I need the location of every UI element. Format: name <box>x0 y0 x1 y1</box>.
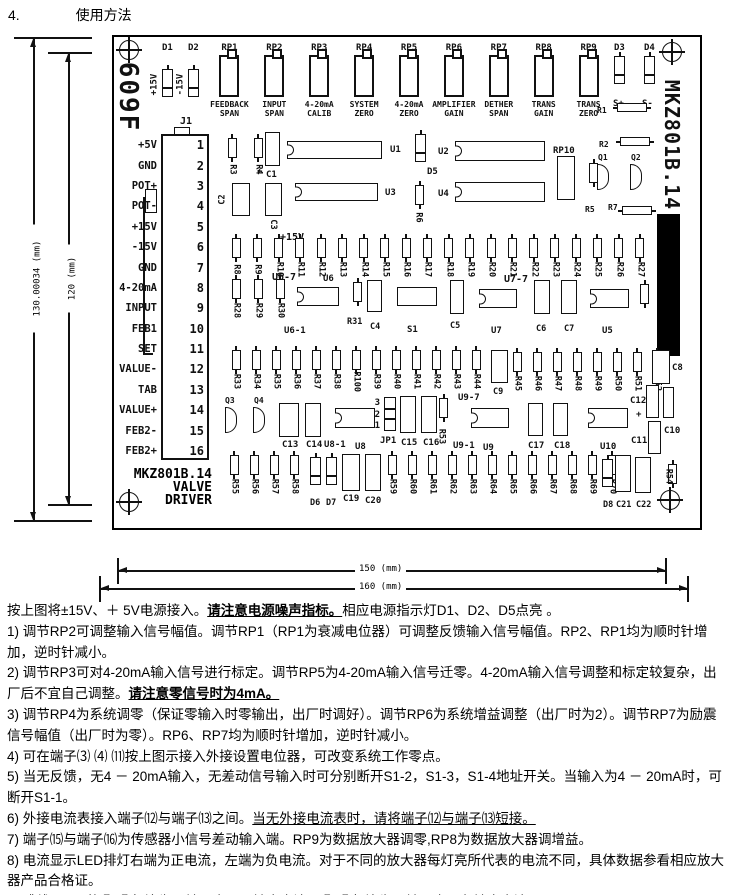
resistor: R19 <box>460 238 480 275</box>
resistor: R15 <box>375 238 395 275</box>
ic-u10 <box>588 408 628 428</box>
resistor-r5-icon <box>589 163 598 183</box>
resistor-body-icon <box>292 350 301 370</box>
resistor-body-icon <box>588 455 597 475</box>
resistor: R39 <box>366 350 386 387</box>
label-c18: C18 <box>554 441 570 451</box>
resistor-body-icon <box>412 350 421 370</box>
j1-pin-row: 4-20mA 8 <box>109 278 208 298</box>
resistor: R18 <box>439 238 459 275</box>
section-number: 4. <box>8 7 20 23</box>
dim-cap <box>14 520 92 522</box>
resistor: R65 <box>502 455 522 492</box>
resistor: R48 <box>567 352 587 389</box>
resistor: R68 <box>562 455 582 492</box>
resistor-body-icon <box>380 238 389 258</box>
resistor: R50 <box>607 352 627 389</box>
label-r6: R6 <box>414 208 425 228</box>
resistor-body-icon <box>550 238 559 258</box>
label-u8: U8 <box>355 442 366 452</box>
resistor-label: R55 <box>229 477 240 497</box>
resistor: R62 <box>442 455 462 492</box>
resistor-label: R26 <box>613 260 624 280</box>
resistor: R36 <box>286 350 306 387</box>
label-c6: C6 <box>536 324 546 334</box>
trimpot-caption-line2: ZERO <box>579 109 598 118</box>
resistor-body-icon <box>428 455 437 475</box>
capacitor-c16-icon <box>421 396 437 433</box>
resistor-body-icon <box>465 238 474 258</box>
label-q4: Q4 <box>254 396 264 405</box>
trimpot-caption-line2: GAIN <box>534 109 553 118</box>
resistor-row-4a: R55 R56 R57 R58 <box>224 455 304 492</box>
instruction-item-4: 4) 可在端子⑶ ⑷ ⑾按上图示接入外接设置电位器，可改变系统工作零点。 <box>7 747 724 768</box>
jp1-pin-number: 3 <box>372 398 380 410</box>
intro-post: 相应电源指示灯D1、D2、D5点亮 。 <box>342 603 560 618</box>
dip-switch-s1-icon <box>397 287 437 306</box>
capacitor-c7-icon <box>561 280 577 314</box>
intro-emphasis: 请注意电源噪声指标。 <box>207 603 342 618</box>
mounting-hole-icon <box>660 490 680 510</box>
dim-arrow <box>65 496 71 504</box>
jp1-pin-number: 1 <box>372 421 380 433</box>
resistor-body-icon <box>423 238 432 258</box>
trimpot-caption-line1: SYSTEM <box>350 100 379 109</box>
instruction-item-5: 5) 当无反馈，无4 － 20mA输入，无差动信号输入时可分别断开S1-2，S1… <box>7 767 724 809</box>
resistor-body-icon <box>232 279 241 299</box>
transistor-q4-icon <box>253 407 265 433</box>
label-j1: J1 <box>180 116 192 127</box>
resistor: R67 <box>542 455 562 492</box>
resistor-label: R17 <box>422 260 433 280</box>
resistor: R34 <box>246 350 266 387</box>
j1-pin-row: SET 11 <box>109 339 208 359</box>
resistor-body-icon <box>276 279 285 299</box>
label-c19: C19 <box>343 494 359 504</box>
resistor-body-icon <box>472 350 481 370</box>
resistor-r6-icon <box>415 185 424 205</box>
capacitor-c13-icon <box>279 403 299 437</box>
resistor: R37 <box>306 350 326 387</box>
resistor-body-icon <box>272 350 281 370</box>
resistor-body-icon <box>250 455 259 475</box>
resistor-label: R35 <box>271 372 282 392</box>
resistor-label: R19 <box>464 260 475 280</box>
label-r54: R54 <box>664 467 675 487</box>
resistor-body-icon <box>254 279 263 299</box>
resistor-row-4b: R59 R60 R61 R62 R63 R64 R65 R66 <box>382 455 594 492</box>
j1-pin-number: 6 <box>197 240 208 254</box>
ic-u8 <box>335 408 375 428</box>
trimpot-body-icon <box>534 55 554 97</box>
j1-pin-label: INPUT <box>109 302 157 314</box>
resistor: R20 <box>481 238 501 275</box>
resistor: R3 <box>222 138 242 175</box>
resistor-body-icon <box>338 238 347 258</box>
j1-pin-label: POT- <box>109 200 157 212</box>
resistor: R12 <box>311 238 331 275</box>
j1-pin-row: +5V 1 <box>109 135 208 155</box>
resistor-body-icon <box>317 238 326 258</box>
resistor: R23 <box>545 238 565 275</box>
capacitor-c9-icon <box>491 350 508 383</box>
label-minus15v: -15V <box>175 65 186 105</box>
trimpot: RP7 DETHER SPAN <box>476 43 521 118</box>
trimpot-body-icon <box>579 55 599 97</box>
led-bar-display <box>657 214 680 356</box>
capacitor-c14-icon <box>305 403 321 437</box>
resistor: R24 <box>566 238 586 275</box>
trimpot-caption-line1: AMPLIFIER <box>432 100 475 109</box>
diode-d1-icon <box>162 69 173 97</box>
ic-u6-1 <box>297 287 339 306</box>
resistor-label: R60 <box>407 477 418 497</box>
resistor-label: R66 <box>527 477 538 497</box>
label-jp1: JP1 <box>380 436 396 446</box>
resistor-label: R100 <box>351 372 362 392</box>
resistor: R9 <box>247 238 267 275</box>
polarity-plus-mark: + <box>636 410 641 420</box>
trimpot-caption-line2: SPAN <box>265 109 284 118</box>
label-c13: C13 <box>282 440 298 450</box>
resistor-label: R63 <box>467 477 478 497</box>
label-c17: C17 <box>528 441 544 451</box>
j1-pin-row: GND 2 <box>109 155 208 175</box>
section-title: 使用方法 <box>76 7 132 23</box>
resistor-body-icon <box>635 238 644 258</box>
j1-pin-row: FEB1 10 <box>109 319 208 339</box>
j1-pin-number: 8 <box>197 281 208 295</box>
resistor-body-icon <box>392 350 401 370</box>
resistor-body-icon <box>432 350 441 370</box>
resistor-body-icon <box>573 352 582 372</box>
dim-cap <box>14 37 92 39</box>
label-d5: D5 <box>427 167 438 177</box>
dim-arrow <box>101 585 109 591</box>
label-c10: C10 <box>664 426 680 436</box>
resistor: R17 <box>417 238 437 275</box>
label-c20: C20 <box>365 496 381 506</box>
j1-pin-label: +5V <box>109 139 157 151</box>
trimpot-caption-line2: SPAN <box>220 109 239 118</box>
j1-pin-label: VALUE+ <box>109 404 157 416</box>
resistor-row-3b: R45 R46 R47 R48 R49 R50 R51 R52 <box>507 352 657 389</box>
resistor-body-icon <box>295 238 304 258</box>
label-u7: U7 <box>491 326 502 336</box>
dim-cap <box>48 504 92 506</box>
instruction-item-3: 3) 调节RP4为系统调零（保证零输入时零输出，出厂时调好）。调节RP6为系统增… <box>7 705 724 747</box>
label-u9-1: U9-1 <box>453 441 475 451</box>
resistor: R46 <box>527 352 547 389</box>
resistor-body-icon <box>508 455 517 475</box>
label-s1: S1 <box>407 325 418 335</box>
resistor-body-icon <box>372 350 381 370</box>
resistor-label: R27 <box>634 260 645 280</box>
resistor-body-icon <box>593 238 602 258</box>
resistor-body-icon <box>312 350 321 370</box>
ic-u4 <box>455 182 545 202</box>
resistor-body-icon <box>402 238 411 258</box>
trimpot-rp10-icon <box>557 156 575 200</box>
trimpot: RP1 FEEDBACK SPAN <box>207 43 252 118</box>
jp1-pin-number: 2 <box>372 410 380 422</box>
resistor-row-2: R28 R29 R30 <box>226 279 290 316</box>
resistor-label: R22 <box>528 260 539 280</box>
j1-pin-number: 4 <box>197 199 208 213</box>
item6-emphasis: 当无外接电流表时，请将端子⑿与端子⒀短接。 <box>252 811 536 826</box>
resistor: R66 <box>522 455 542 492</box>
trimpot-caption-line1: INPUT <box>262 100 286 109</box>
resistor-body-icon <box>593 352 602 372</box>
resistor-r53-icon <box>439 398 448 418</box>
label-c1: C1 <box>266 170 277 180</box>
label-u6-1: U6-1 <box>284 326 306 336</box>
section-header: 4. 使用方法 <box>8 5 132 25</box>
label-d2: D2 <box>188 43 199 53</box>
trimpot-body-icon <box>264 55 284 97</box>
board-code-right: MKZ801B.14 <box>659 55 685 235</box>
capacitor-c21-icon <box>615 455 631 492</box>
resistor-label: R65 <box>507 477 518 497</box>
resistor-label: R16 <box>401 260 412 280</box>
trimpot-caption-line2: SPAN <box>489 109 508 118</box>
resistor-label: R14 <box>358 260 369 280</box>
label-d7: D7 <box>326 498 336 508</box>
item6-pre: 6) 外接电流表接入端子⑿与端子⒀之间。 <box>7 811 252 826</box>
instruction-item-8: 8) 电流显示LED排灯右端为正电流，左端为负电流。对于不同的放大器每灯亮所代表… <box>7 851 724 893</box>
label-u2: U2 <box>438 147 449 157</box>
trimpot: RP8 TRANS GAIN <box>521 43 566 118</box>
resistor: R8 <box>226 238 246 275</box>
capacitor-c22-icon <box>635 457 651 493</box>
resistor-label: R56 <box>249 477 260 497</box>
instruction-item-1: 1) 调节RP2可调整输入信号幅值。调节RP1（RP1为衰减电位器）可调整反馈输… <box>7 622 724 664</box>
capacitor-c5-icon <box>450 280 464 314</box>
label-rp10: RP10 <box>553 146 575 156</box>
resistor-label: R3 <box>227 160 238 180</box>
capacitor-c1-icon <box>265 132 280 166</box>
ic-u1 <box>287 141 382 159</box>
j1-pin-number: 7 <box>197 261 208 275</box>
resistor: R16 <box>396 238 416 275</box>
label-u4: U4 <box>438 189 449 199</box>
resistor-body-icon <box>352 350 361 370</box>
resistor-body-icon <box>228 138 237 158</box>
resistor-body-icon <box>468 455 477 475</box>
resistor-label: R46 <box>532 374 543 394</box>
resistor-body-icon <box>572 238 581 258</box>
resistor-label: R24 <box>571 260 582 280</box>
label-u5: U5 <box>602 326 613 336</box>
resistor-label: R38 <box>331 372 342 392</box>
trimpot: RP5 4-20mA ZERO <box>387 43 432 118</box>
resistor-r1-icon <box>617 103 647 112</box>
label-c21: C21 <box>616 500 631 510</box>
resistor: R13 <box>332 238 352 275</box>
capacitor-c12-icon <box>646 385 659 418</box>
resistor-body-icon <box>548 455 557 475</box>
resistor-label: R49 <box>592 374 603 394</box>
resistor-body-icon <box>253 238 262 258</box>
trimpot-body-icon <box>489 55 509 97</box>
ic-u2 <box>455 141 545 161</box>
resistor-label: R15 <box>379 260 390 280</box>
resistor: R44 <box>466 350 486 387</box>
resistor: R25 <box>587 238 607 275</box>
j1-pin-number: 2 <box>197 159 208 173</box>
label-r2: R2 <box>599 140 609 149</box>
resistor: R28 <box>226 279 246 316</box>
resistor: R57 <box>264 455 284 492</box>
resistor-label: R69 <box>587 477 598 497</box>
resistor-label: R68 <box>567 477 578 497</box>
resistor-label: R41 <box>411 372 422 392</box>
dim-arrow <box>679 585 687 591</box>
resistor: R29 <box>248 279 268 316</box>
diode-d8-icon <box>602 459 613 487</box>
label-c15: C15 <box>401 438 417 448</box>
resistor: R11 <box>290 238 310 275</box>
resistor-label: R48 <box>572 374 583 394</box>
resistor-body-icon <box>528 455 537 475</box>
resistor: R61 <box>422 455 442 492</box>
j1-pin-number: 10 <box>190 322 208 336</box>
resistor-body-icon <box>448 455 457 475</box>
resistor: R63 <box>462 455 482 492</box>
resistor-body-icon <box>613 352 622 372</box>
trimpot-caption-line1: FEEDBACK <box>210 100 249 109</box>
resistor-body-icon <box>408 455 417 475</box>
resistor-label: R58 <box>289 477 300 497</box>
resistor-label: R40 <box>391 372 402 392</box>
dim-label-width-outer: 160 (mm) <box>355 582 406 592</box>
transistor-q1-icon <box>597 164 609 190</box>
resistor: R64 <box>482 455 502 492</box>
capacitor-c11-icon <box>648 421 661 454</box>
capacitor-c4-icon <box>367 280 382 312</box>
transistor-q3-icon <box>225 407 237 433</box>
resistor: R10 <box>269 238 289 275</box>
j1-pin-row: FEB2+ 16 <box>109 441 208 461</box>
trimpot-body-icon <box>309 55 329 97</box>
j1-pin-label: FEB1 <box>109 323 157 335</box>
diode-d7-icon <box>326 457 337 485</box>
resistor: R35 <box>266 350 286 387</box>
j1-pin-label: VALUE- <box>109 363 157 375</box>
resistor: R14 <box>354 238 374 275</box>
j1-pin-row: +15V 5 <box>109 217 208 237</box>
dim-arrow <box>30 512 36 520</box>
label-d1: D1 <box>162 43 173 53</box>
resistor-body-icon <box>614 238 623 258</box>
resistor-r31-icon <box>353 282 362 302</box>
label-r1: R1 <box>597 106 607 115</box>
label-u7-7: U7-7 <box>504 274 528 285</box>
resistor-body-icon <box>553 352 562 372</box>
resistor-label: R28 <box>231 301 242 321</box>
resistor-body-icon <box>513 352 522 372</box>
j1-pin-number: 13 <box>190 383 208 397</box>
trimpot-caption-line1: 4-20mA <box>395 100 424 109</box>
label-r53: R53 <box>437 427 448 447</box>
diode-d2-icon <box>188 69 199 97</box>
label-r5: R5 <box>585 205 595 214</box>
resistor-label: R18 <box>443 260 454 280</box>
dim-arrow <box>30 39 36 47</box>
label-r32 <box>639 312 650 332</box>
resistor-body-icon <box>230 455 239 475</box>
resistor-body-icon <box>254 138 263 158</box>
label-q2: Q2 <box>631 153 641 162</box>
instruction-item-2: 2) 调节RP3可对4-20mA输入信号进行标定。调节RP5为4-20mA输入信… <box>7 663 724 705</box>
j1-pin-number: 9 <box>197 301 208 315</box>
resistor-body-icon <box>290 455 299 475</box>
resistor-label: R57 <box>269 477 280 497</box>
resistor-body-icon <box>533 352 542 372</box>
resistor: R40 <box>386 350 406 387</box>
ic-u5 <box>590 289 629 308</box>
resistor-body-icon <box>452 350 461 370</box>
trimpot-caption-line1: 4-20mA <box>305 100 334 109</box>
trimpot-caption-line2: CALIB <box>307 109 331 118</box>
intro-pre: 按上图将±15V、＋ 5V电源接入。 <box>7 603 207 618</box>
label-c22: C22 <box>636 500 651 510</box>
dim-label-height-outer: 130.00034 (mm) <box>31 225 44 333</box>
resistor-r2-icon <box>620 137 650 146</box>
j1-pin-number: 3 <box>197 179 208 193</box>
j1-pin-number: 14 <box>190 403 208 417</box>
resistor: R42 <box>426 350 446 387</box>
resistor: R60 <box>402 455 422 492</box>
trimpot: RP2 INPUT SPAN <box>252 43 297 118</box>
label-c9: C9 <box>493 387 503 397</box>
label-u6: U6 <box>323 274 334 284</box>
trimpot-body-icon <box>354 55 374 97</box>
resistor-label: R36 <box>291 372 302 392</box>
trimpot-body-icon <box>219 55 239 97</box>
diode-d5-icon <box>415 134 426 162</box>
j1-pin-label: -15V <box>109 241 157 253</box>
pcb-diagram: 609F MKZ801B.14 D1 D2 +15V -15V RP1 FEED… <box>112 35 702 530</box>
resistor-r32-icon <box>640 284 649 304</box>
resistor-body-icon <box>274 238 283 258</box>
resistor-label: R20 <box>486 260 497 280</box>
resistor: R45 <box>507 352 527 389</box>
label-u9-7: U9-7 <box>458 393 480 403</box>
resistor-label: R29 <box>253 301 264 321</box>
board-title-block: MKZ801B.14 VALVE DRIVER <box>118 468 212 507</box>
label-u8-1: U8-1 <box>324 440 346 450</box>
dim-label-width-inner: 150 (mm) <box>355 564 406 574</box>
capacitor-c6-icon <box>534 280 550 314</box>
resistor-label: R25 <box>592 260 603 280</box>
capacitor-c2-icon <box>232 183 250 216</box>
capacitor-c20-icon <box>365 454 381 491</box>
resistor-label: R59 <box>387 477 398 497</box>
j1-pin-row: GND 7 <box>109 257 208 277</box>
resistor-body-icon <box>252 350 261 370</box>
resistor: R69 <box>582 455 602 492</box>
resistor-label: R43 <box>451 372 462 392</box>
j1-pin-number: 16 <box>190 444 208 458</box>
resistor: R27 <box>630 238 650 275</box>
label-r7: R7 <box>608 203 618 212</box>
resistor-label: R61 <box>427 477 438 497</box>
j1-pin-label: SET <box>109 343 157 355</box>
label-d8: D8 <box>603 500 613 510</box>
resistor: R41 <box>406 350 426 387</box>
trimpot-row: RP1 FEEDBACK SPAN RP2 INPUT SPAN RP3 4-2… <box>207 43 611 118</box>
